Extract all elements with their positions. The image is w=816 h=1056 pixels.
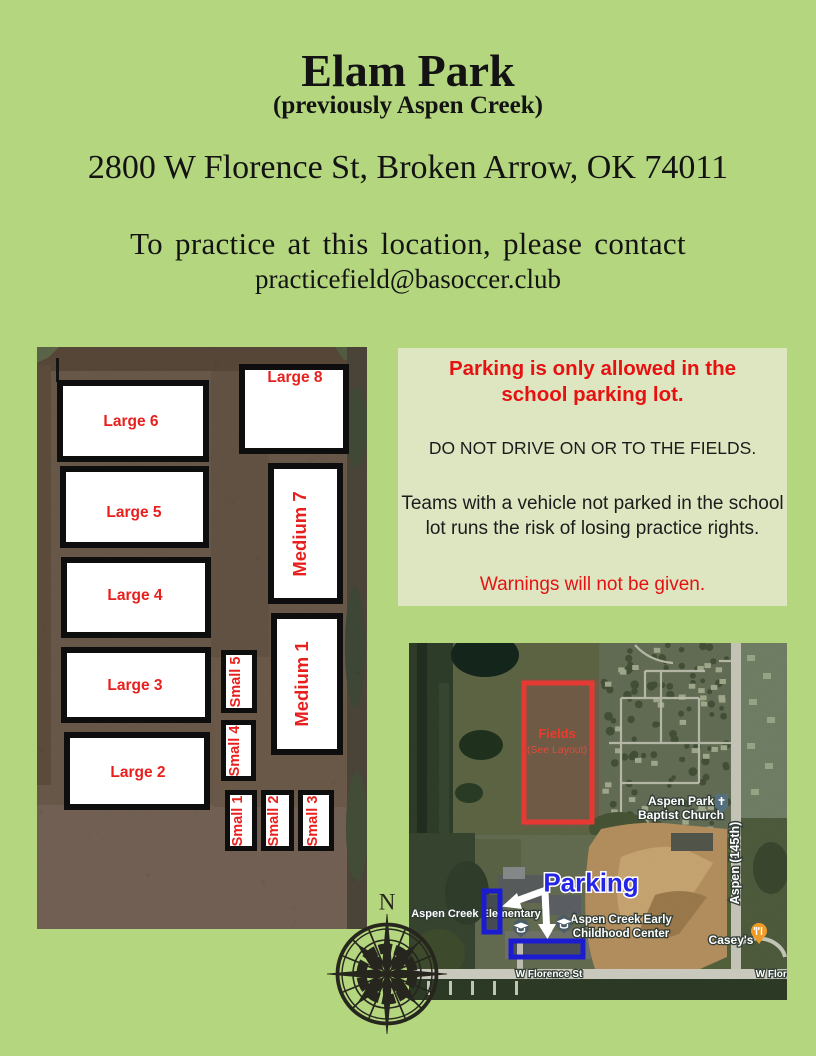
svg-text:Fields: Fields (538, 726, 576, 741)
svg-text:Aspen (145th): Aspen (145th) (728, 822, 742, 905)
svg-text:Large 8: Large 8 (267, 369, 323, 386)
svg-text:Parking: Parking (543, 868, 638, 898)
svg-text:Childhood Center: Childhood Center (573, 928, 670, 940)
svg-text:Large 4: Large 4 (107, 587, 163, 604)
svg-text:W Florence St: W Florence St (516, 969, 583, 980)
svg-text:Casey's: Casey's (709, 933, 754, 947)
svg-text:Aspen Park: Aspen Park (648, 794, 714, 808)
svg-text:Medium 7: Medium 7 (289, 491, 310, 576)
svg-text:Small 4: Small 4 (227, 726, 243, 777)
svg-text:Large 6: Large 6 (103, 413, 159, 430)
svg-text:(See Layout): (See Layout) (527, 744, 587, 756)
svg-text:Large 2: Large 2 (110, 764, 165, 781)
svg-text:Baptist Church: Baptist Church (638, 808, 724, 822)
svg-text:W Flore: W Flore (756, 969, 787, 980)
svg-text:Large 3: Large 3 (107, 677, 163, 694)
svg-text:N: N (379, 890, 396, 915)
svg-text:Medium 1: Medium 1 (291, 641, 312, 726)
svg-text:Small 1: Small 1 (230, 796, 246, 847)
svg-text:Small 2: Small 2 (266, 796, 282, 847)
svg-text:Large 5: Large 5 (106, 504, 162, 521)
svg-text:Aspen Creek Early: Aspen Creek Early (570, 914, 672, 926)
svg-text:Small 5: Small 5 (228, 657, 244, 708)
svg-text:Small 3: Small 3 (305, 796, 321, 847)
